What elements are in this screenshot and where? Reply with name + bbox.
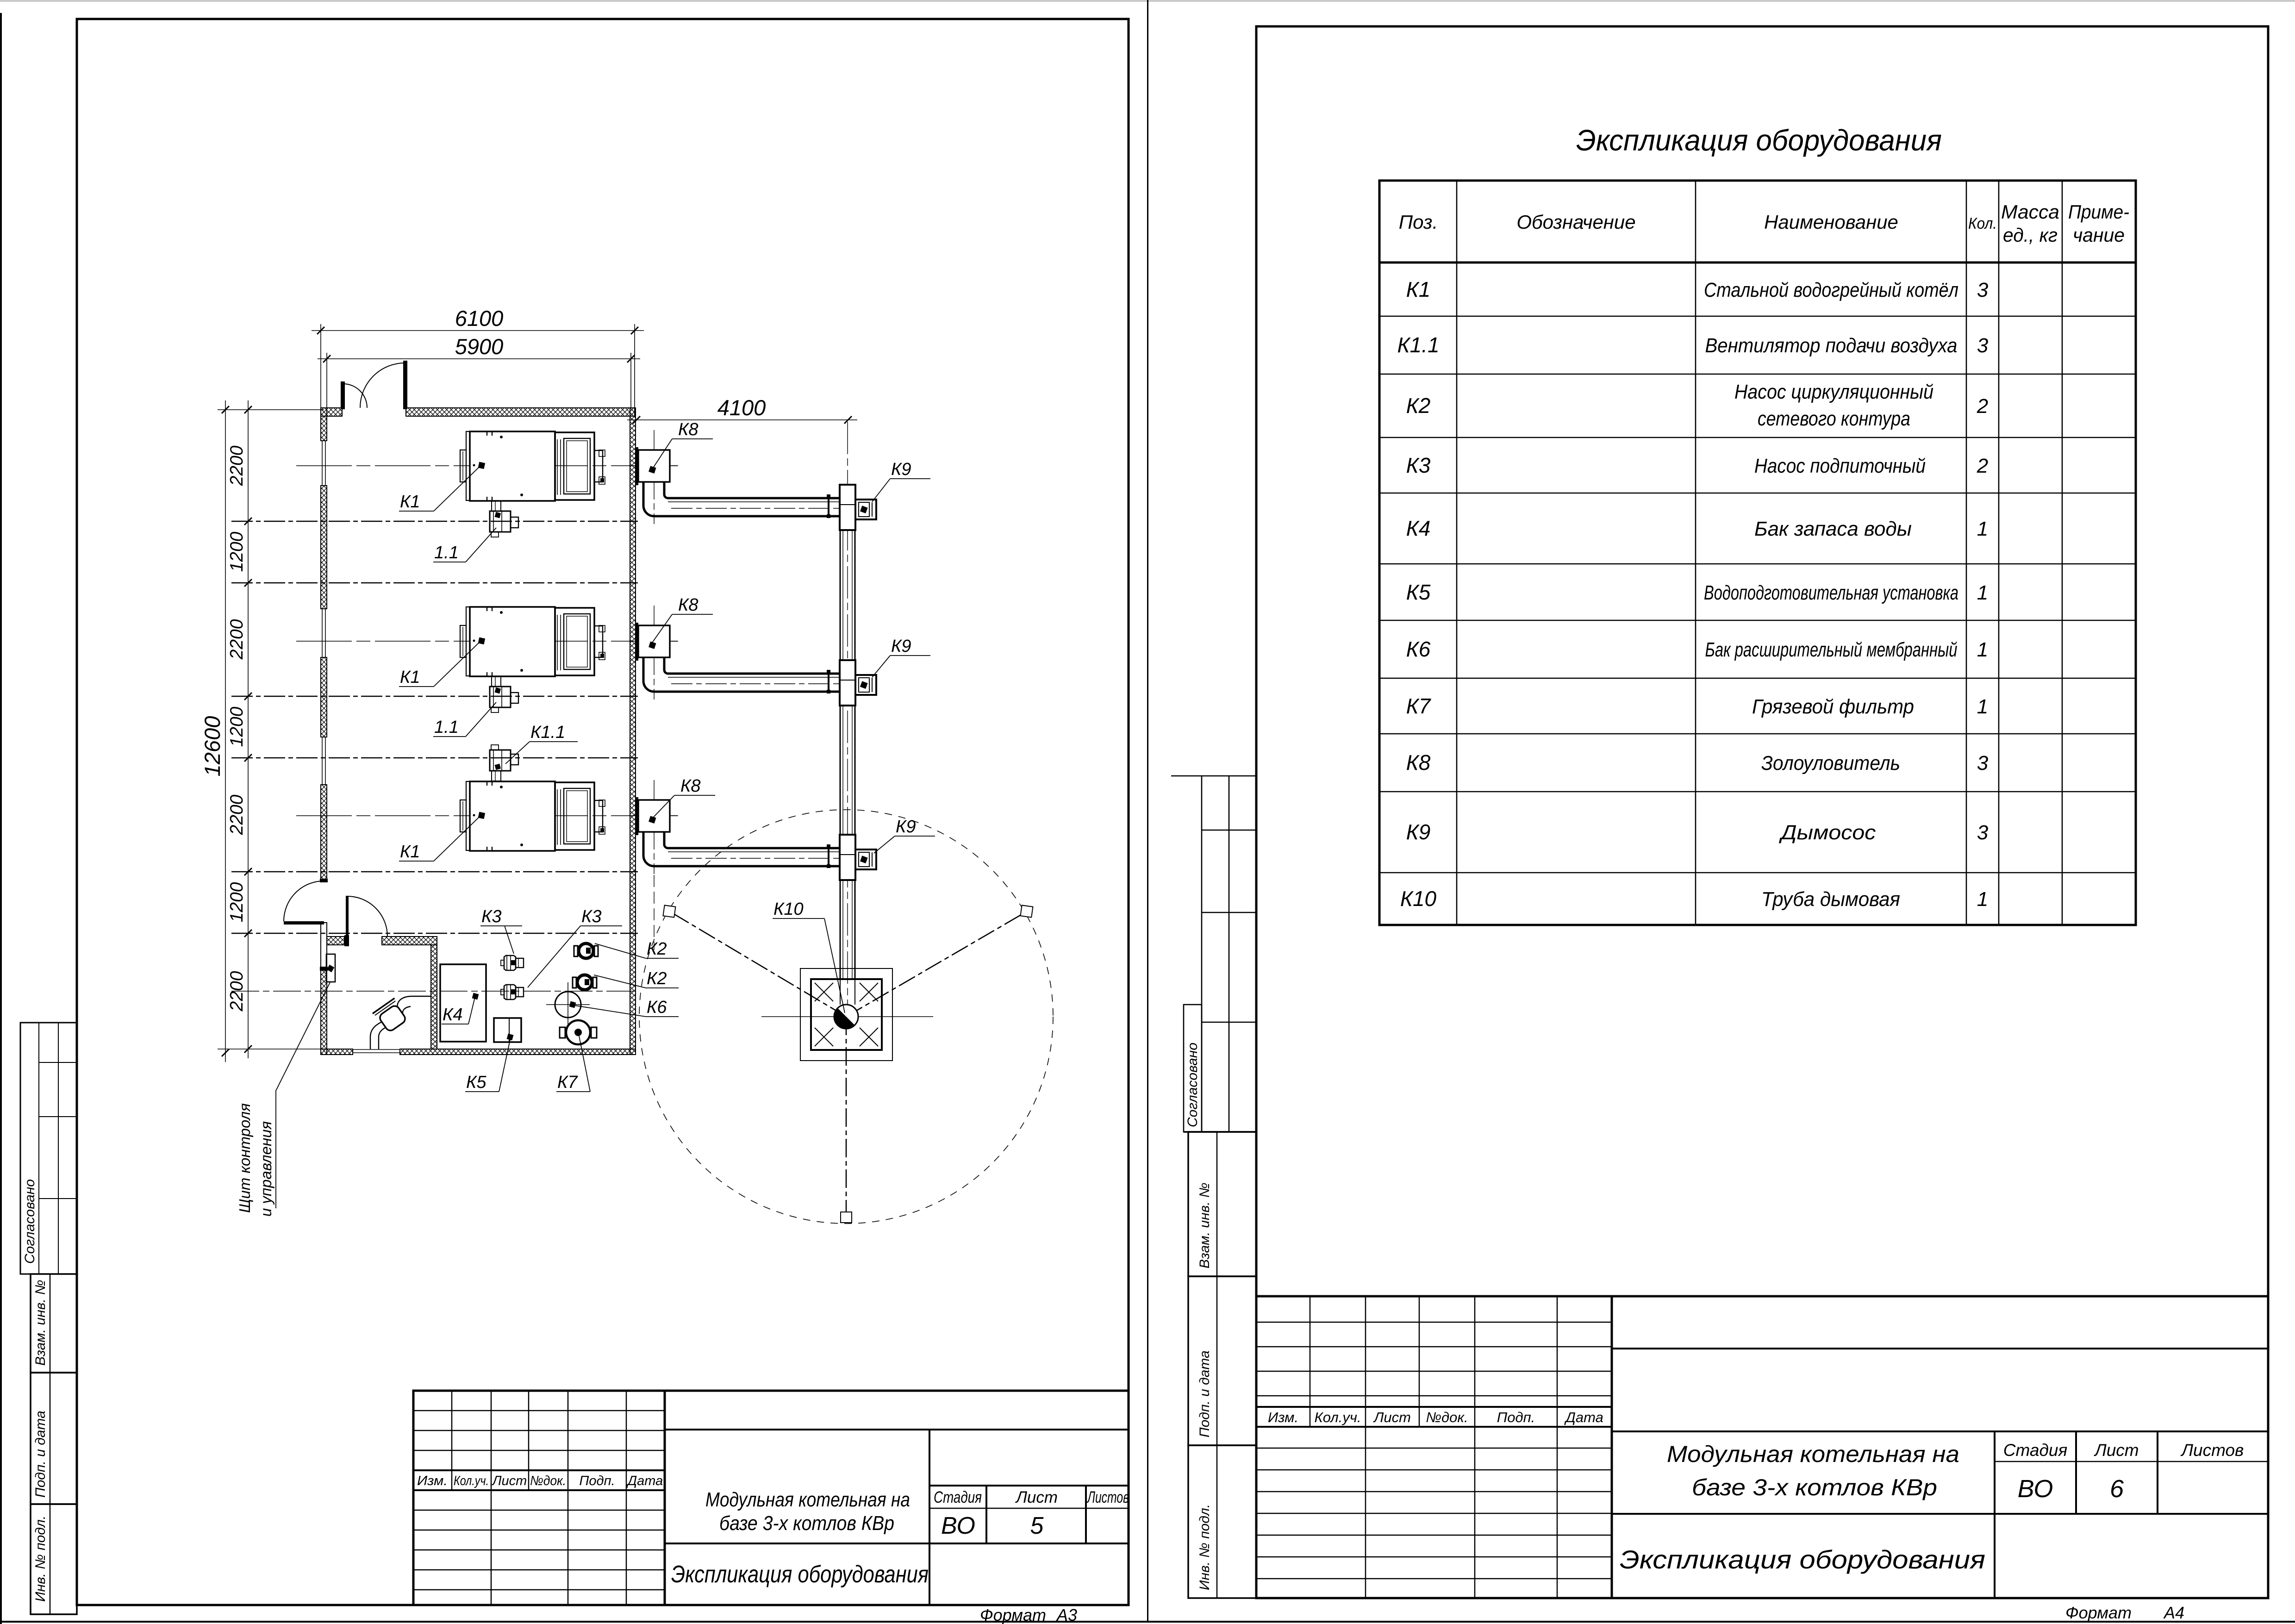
svg-text:1200: 1200 — [227, 882, 247, 922]
svg-text:Масса: Масса — [2001, 201, 2059, 223]
svg-text:ВО: ВО — [941, 1512, 975, 1539]
svg-text:сетевого контура: сетевого контура — [1758, 407, 1910, 430]
svg-text:Экспликация оборудования: Экспликация оборудования — [671, 1561, 929, 1588]
svg-text:Обозначение: Обозначение — [1516, 211, 1635, 233]
svg-text:Стадия: Стадия — [934, 1488, 982, 1506]
svg-text:Поз.: Поз. — [1399, 211, 1438, 233]
svg-text:Дымосос: Дымосос — [1778, 821, 1876, 844]
svg-text:Дата: Дата — [626, 1474, 663, 1488]
svg-text:1: 1 — [1977, 638, 1988, 661]
svg-text:Вентилятор подачи воздуха: Вентилятор подачи воздуха — [1705, 334, 1958, 357]
svg-text:Взам. инв. №: Взам. инв. № — [33, 1280, 48, 1366]
svg-text:чание: чание — [2073, 224, 2125, 246]
svg-text:1.1: 1.1 — [434, 718, 459, 737]
svg-text:Золоуловитель: Золоуловитель — [1761, 752, 1900, 775]
svg-text:ВО: ВО — [2018, 1475, 2053, 1503]
svg-text:№док.: №док. — [1426, 1409, 1468, 1425]
svg-text:А3: А3 — [1056, 1605, 1077, 1624]
svg-text:К4: К4 — [1406, 516, 1431, 540]
svg-text:Инв. № подл.: Инв. № подл. — [33, 1516, 48, 1602]
svg-text:1: 1 — [1977, 888, 1988, 911]
svg-text:Листов: Листов — [2181, 1441, 2244, 1460]
svg-text:2200: 2200 — [227, 794, 247, 835]
svg-text:К6: К6 — [647, 998, 667, 1017]
svg-text:К3: К3 — [1406, 453, 1431, 477]
svg-text:ед., кг: ед., кг — [2003, 224, 2058, 246]
svg-text:К8: К8 — [1406, 750, 1431, 775]
svg-text:А4: А4 — [2163, 1603, 2184, 1622]
svg-text:Лист: Лист — [2094, 1441, 2139, 1460]
svg-text:5: 5 — [1030, 1512, 1044, 1539]
svg-text:К8: К8 — [678, 595, 698, 615]
svg-text:1200: 1200 — [227, 531, 247, 572]
svg-text:Листов: Листов — [1087, 1488, 1129, 1506]
svg-text:Экспликация оборудования: Экспликация оборудования — [1620, 1545, 1985, 1574]
svg-text:К1: К1 — [400, 668, 420, 687]
svg-text:12600: 12600 — [200, 716, 225, 777]
svg-text:1.1: 1.1 — [434, 543, 459, 562]
svg-text:К5: К5 — [1406, 580, 1431, 604]
svg-text:Насос циркуляционный: Насос циркуляционный — [1734, 381, 1933, 403]
svg-text:К9: К9 — [891, 460, 911, 479]
svg-text:6: 6 — [2110, 1475, 2124, 1503]
svg-text:2200: 2200 — [227, 971, 247, 1012]
svg-text:Дата: Дата — [1564, 1409, 1603, 1425]
svg-text:и управления: и управления — [257, 1121, 274, 1217]
svg-text:1: 1 — [1977, 518, 1988, 540]
svg-text:Кол.уч.: Кол.уч. — [1314, 1409, 1361, 1425]
svg-text:Подп.: Подп. — [579, 1474, 615, 1488]
svg-text:2: 2 — [1977, 455, 1988, 477]
svg-text:Изм.: Изм. — [1268, 1409, 1298, 1425]
svg-text:К1.1: К1.1 — [530, 723, 565, 742]
svg-text:Взам. инв. №: Взам. инв. № — [1197, 1182, 1212, 1268]
svg-text:К4: К4 — [443, 1005, 463, 1024]
svg-text:Модульная котельная на: Модульная котельная на — [705, 1488, 910, 1511]
svg-text:5900: 5900 — [455, 334, 504, 359]
svg-text:Насос подпиточный: Насос подпиточный — [1754, 455, 1926, 477]
svg-text:Инв. № подл.: Инв. № подл. — [1197, 1504, 1212, 1590]
svg-text:К10: К10 — [1400, 887, 1437, 911]
svg-text:1200: 1200 — [227, 706, 247, 747]
svg-text:4100: 4100 — [717, 395, 766, 420]
svg-text:К9: К9 — [896, 817, 916, 837]
svg-text:Лист: Лист — [492, 1474, 527, 1488]
svg-text:Подп. и дата: Подп. и дата — [1197, 1350, 1212, 1437]
svg-text:К1.1: К1.1 — [1397, 333, 1439, 357]
svg-text:К2: К2 — [647, 969, 667, 988]
svg-text:К10: К10 — [773, 899, 804, 919]
svg-text:3: 3 — [1977, 821, 1989, 844]
svg-text:2200: 2200 — [227, 445, 247, 486]
svg-text:Подп. и дата: Подп. и дата — [33, 1411, 48, 1498]
svg-text:Согласовано: Согласовано — [22, 1179, 37, 1264]
svg-text:№док.: №док. — [530, 1474, 566, 1488]
svg-text:К8: К8 — [678, 420, 698, 439]
svg-text:К2: К2 — [647, 939, 667, 959]
svg-text:К3: К3 — [481, 907, 502, 926]
svg-text:К7: К7 — [1406, 694, 1431, 718]
svg-text:Подп.: Подп. — [1497, 1409, 1535, 1425]
svg-text:3: 3 — [1977, 334, 1989, 357]
svg-text:К1: К1 — [400, 842, 420, 862]
svg-text:К1: К1 — [400, 492, 420, 512]
svg-text:базе 3-х котлов КВр: базе 3-х котлов КВр — [719, 1512, 894, 1535]
svg-text:К5: К5 — [466, 1073, 486, 1092]
svg-text:3: 3 — [1977, 752, 1989, 775]
svg-text:Лист: Лист — [1373, 1409, 1411, 1425]
svg-text:Бак расширительный мембранный: Бак расширительный мембранный — [1705, 638, 1958, 661]
svg-text:К8: К8 — [680, 776, 701, 796]
svg-text:Приме-: Приме- — [2068, 201, 2129, 223]
svg-text:Щит контроля: Щит контроля — [236, 1103, 253, 1213]
svg-text:Кол.: Кол. — [1968, 215, 1997, 232]
svg-text:1: 1 — [1977, 695, 1988, 718]
svg-text:К7: К7 — [557, 1073, 578, 1092]
svg-text:Стальной водогрейный котёл: Стальной водогрейный котёл — [1704, 279, 1958, 301]
svg-text:Стадия: Стадия — [2003, 1441, 2068, 1460]
svg-text:Кол.уч.: Кол.уч. — [454, 1474, 489, 1488]
svg-text:К9: К9 — [1406, 820, 1431, 844]
svg-text:3: 3 — [1977, 279, 1989, 301]
svg-text:2: 2 — [1977, 395, 1988, 418]
svg-text:К9: К9 — [891, 637, 911, 656]
svg-text:К6: К6 — [1406, 637, 1431, 661]
svg-text:К2: К2 — [1406, 394, 1431, 418]
svg-text:Экспликация оборудования: Экспликация оборудования — [1576, 124, 1942, 157]
svg-text:6100: 6100 — [455, 306, 504, 331]
svg-text:Согласовано: Согласовано — [1185, 1043, 1200, 1127]
svg-text:Грязевой фильтр: Грязевой фильтр — [1752, 695, 1914, 718]
svg-text:Наименование: Наименование — [1764, 211, 1898, 233]
svg-text:Изм.: Изм. — [417, 1474, 448, 1488]
svg-text:Формат: Формат — [2065, 1603, 2132, 1622]
svg-text:Труба дымовая: Труба дымовая — [1761, 888, 1900, 911]
svg-text:К1: К1 — [1406, 277, 1431, 301]
svg-text:1: 1 — [1977, 581, 1988, 604]
svg-text:Формат: Формат — [980, 1605, 1046, 1624]
svg-text:Бак запаса воды: Бак запаса воды — [1754, 518, 1912, 540]
svg-text:Лист: Лист — [1015, 1488, 1058, 1506]
svg-text:К3: К3 — [581, 907, 602, 926]
svg-text:базе 3-х котлов КВр: базе 3-х котлов КВр — [1692, 1474, 1937, 1500]
svg-text:Водоподготовительная установка: Водоподготовительная установка — [1704, 581, 1958, 604]
svg-text:Модульная котельная на: Модульная котельная на — [1667, 1441, 1959, 1467]
svg-text:2200: 2200 — [227, 619, 247, 660]
